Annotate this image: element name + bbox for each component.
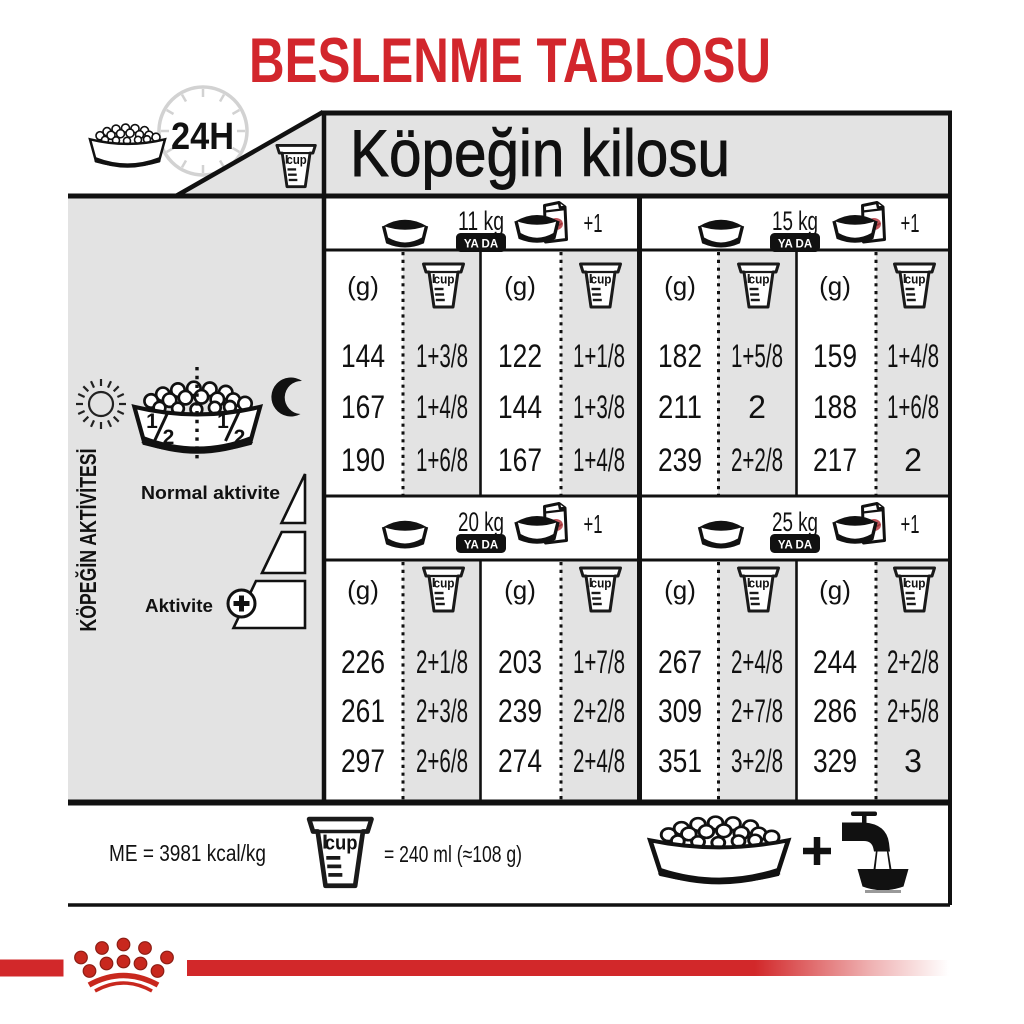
- svg-text:188: 188: [813, 389, 857, 425]
- svg-text:226: 226: [341, 644, 385, 680]
- svg-text:2+5/8: 2+5/8: [887, 693, 939, 729]
- svg-text:1+3/8: 1+3/8: [573, 389, 625, 425]
- svg-text:144: 144: [341, 338, 385, 374]
- svg-text:11 kg: 11 kg: [458, 206, 504, 236]
- svg-text:167: 167: [498, 442, 542, 478]
- svg-text:2+2/8: 2+2/8: [573, 693, 625, 729]
- svg-text:+1: +1: [901, 509, 920, 539]
- svg-text:267: 267: [658, 644, 702, 680]
- svg-text:3: 3: [904, 743, 922, 779]
- svg-text:+1: +1: [584, 509, 603, 539]
- svg-text:(g): (g): [664, 271, 696, 301]
- svg-text:+1: +1: [584, 208, 603, 238]
- svg-text:203: 203: [498, 644, 542, 680]
- svg-text:2+2/8: 2+2/8: [731, 442, 783, 478]
- svg-text:309: 309: [658, 693, 702, 729]
- svg-text:(g): (g): [819, 575, 851, 605]
- svg-text:Köpeğin kilosu: Köpeğin kilosu: [350, 116, 730, 190]
- svg-text:YA DA: YA DA: [464, 540, 498, 552]
- svg-text:2+4/8: 2+4/8: [731, 644, 783, 680]
- svg-text:25 kg: 25 kg: [772, 507, 818, 537]
- svg-text:(g): (g): [504, 271, 536, 301]
- svg-text:167: 167: [341, 389, 385, 425]
- svg-text:1+4/8: 1+4/8: [887, 338, 939, 374]
- svg-text:(g): (g): [664, 575, 696, 605]
- svg-text:2+4/8: 2+4/8: [573, 743, 625, 779]
- svg-text:= 240 ml (≈108 g): = 240 ml (≈108 g): [384, 841, 522, 867]
- svg-text:329: 329: [813, 743, 857, 779]
- svg-text:YA DA: YA DA: [778, 540, 812, 552]
- svg-text:190: 190: [341, 442, 385, 478]
- svg-text:(g): (g): [504, 575, 536, 605]
- svg-text:122: 122: [498, 338, 542, 374]
- svg-text:YA DA: YA DA: [464, 239, 498, 251]
- svg-text:261: 261: [341, 693, 385, 729]
- svg-text:20 kg: 20 kg: [458, 507, 504, 537]
- svg-text:351: 351: [658, 743, 702, 779]
- svg-text:159: 159: [813, 338, 857, 374]
- svg-text:211: 211: [658, 389, 702, 425]
- svg-text:239: 239: [498, 693, 542, 729]
- svg-text:(g): (g): [347, 271, 379, 301]
- svg-text:24H: 24H: [171, 116, 234, 158]
- svg-text:2+6/8: 2+6/8: [416, 743, 468, 779]
- svg-text:2: 2: [904, 442, 922, 478]
- svg-text:2+3/8: 2+3/8: [416, 693, 468, 729]
- svg-text:1+7/8: 1+7/8: [573, 644, 625, 680]
- svg-text:1+4/8: 1+4/8: [416, 389, 468, 425]
- svg-text:297: 297: [341, 743, 385, 779]
- svg-text:15 kg: 15 kg: [772, 206, 818, 236]
- svg-text:Normal aktivite: Normal aktivite: [141, 483, 280, 503]
- svg-text:274: 274: [498, 743, 542, 779]
- svg-text:2: 2: [234, 426, 246, 449]
- svg-text:1: 1: [217, 410, 229, 433]
- svg-text:Aktivite: Aktivite: [145, 596, 213, 616]
- svg-text:1+6/8: 1+6/8: [416, 442, 468, 478]
- svg-text:2+2/8: 2+2/8: [887, 644, 939, 680]
- svg-text:1+1/8: 1+1/8: [573, 338, 625, 374]
- svg-text:217: 217: [813, 442, 857, 478]
- svg-text:ME = 3981 kcal/kg: ME = 3981 kcal/kg: [109, 840, 266, 866]
- svg-text:KÖPEĞİN AKTİVİTESİ: KÖPEĞİN AKTİVİTESİ: [74, 449, 101, 632]
- svg-text:1+3/8: 1+3/8: [416, 338, 468, 374]
- svg-text:1+5/8: 1+5/8: [731, 338, 783, 374]
- svg-text:1+6/8: 1+6/8: [887, 389, 939, 425]
- svg-text:2+1/8: 2+1/8: [416, 644, 468, 680]
- svg-text:182: 182: [658, 338, 702, 374]
- svg-text:1: 1: [146, 410, 158, 433]
- svg-text:(g): (g): [819, 271, 851, 301]
- svg-text:2: 2: [163, 426, 175, 449]
- svg-text:239: 239: [658, 442, 702, 478]
- svg-text:3+2/8: 3+2/8: [731, 743, 783, 779]
- svg-text:(g): (g): [347, 575, 379, 605]
- svg-text:2+7/8: 2+7/8: [731, 693, 783, 729]
- svg-text:244: 244: [813, 644, 857, 680]
- svg-text:1+4/8: 1+4/8: [573, 442, 625, 478]
- svg-text:+1: +1: [901, 208, 920, 238]
- svg-text:286: 286: [813, 693, 857, 729]
- svg-text:144: 144: [498, 389, 542, 425]
- svg-text:BESLENME TABLOSU: BESLENME TABLOSU: [249, 26, 771, 96]
- svg-text:2: 2: [748, 389, 766, 425]
- svg-text:YA DA: YA DA: [778, 239, 812, 251]
